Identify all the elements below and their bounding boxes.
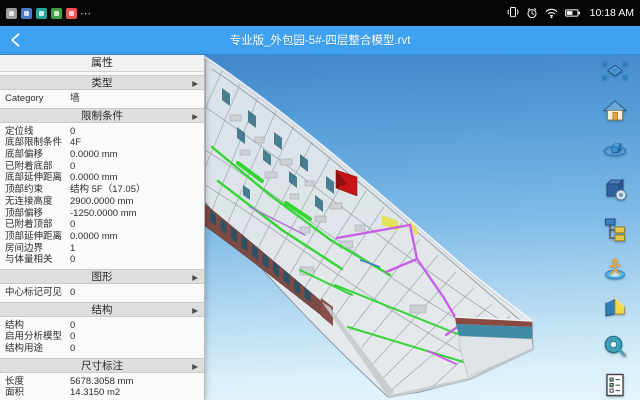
property-value: 0: [70, 320, 75, 332]
app-icon-teal: [36, 8, 47, 19]
section-header[interactable]: 限制条件▶: [0, 108, 204, 123]
property-value: 0: [70, 161, 75, 173]
property-value: 0.0000 mm: [70, 231, 118, 243]
home-view-button[interactable]: [600, 97, 630, 125]
properties-panel: 属性 类型▶Category墙限制条件▶定位线0底部限制条件4F底部偏移0.00…: [0, 55, 205, 400]
status-bar: ⋯ 10:18 AM: [0, 0, 640, 26]
section-header[interactable]: 结构▶: [0, 302, 204, 317]
measure-button[interactable]: [600, 332, 630, 360]
property-row[interactable]: 面积14.3150 m2: [0, 387, 204, 399]
property-label: 顶部约束: [5, 184, 43, 196]
battery-icon: [563, 5, 583, 21]
checklist-button[interactable]: [600, 371, 630, 399]
section-header[interactable]: 图形▶: [0, 269, 204, 284]
properties-panel-title: 属性: [0, 55, 204, 72]
property-label: 中心标记可见: [5, 287, 62, 299]
app-icon-green: [51, 8, 62, 19]
expand-arrow-icon: ▶: [192, 76, 198, 91]
property-label: 无连接高度: [5, 196, 53, 208]
section-header-label: 图形: [92, 271, 113, 283]
property-row[interactable]: 已附着底部0: [0, 161, 204, 173]
clock-time: 10:18 AM: [590, 7, 634, 19]
structure-tree-button[interactable]: [600, 215, 630, 243]
expand-arrow-icon: ▶: [192, 359, 198, 374]
property-row[interactable]: 底部偏移0.0000 mm: [0, 149, 204, 161]
property-label: 底部偏移: [5, 149, 43, 161]
property-label: 顶部偏移: [5, 208, 43, 220]
property-label: 顶部延伸距离: [5, 231, 62, 243]
checklist-icon: [602, 372, 628, 398]
app-screen: ⋯ 10:18 AM: [0, 0, 640, 400]
section-header-label: 类型: [92, 77, 113, 89]
content-area: 属性 类型▶Category墙限制条件▶定位线0底部限制条件4F底部偏移0.00…: [0, 55, 640, 400]
section-header-label: 限制条件: [81, 110, 123, 122]
property-row[interactable]: 结构用途0: [0, 343, 204, 355]
home-icon: [602, 98, 628, 124]
system-status-icons: 10:18 AM: [505, 5, 634, 21]
fit-view-button[interactable]: [600, 58, 630, 86]
alarm-icon: [524, 5, 540, 21]
property-row[interactable]: 结构0: [0, 320, 204, 332]
section-button[interactable]: [600, 293, 630, 321]
property-label: 结构用途: [5, 343, 43, 355]
back-chevron-icon: [8, 31, 26, 49]
property-label: 已附着顶部: [5, 219, 53, 231]
property-row[interactable]: 底部限制条件4F: [0, 137, 204, 149]
property-value: 0.0000 mm: [70, 149, 118, 161]
property-label: 结构: [5, 320, 24, 332]
property-value: 0: [70, 219, 75, 231]
walkthrough-button[interactable]: [600, 254, 630, 282]
property-value: 0: [70, 331, 75, 343]
property-value: 墙: [70, 93, 80, 105]
property-row[interactable]: 底部延伸距离0.0000 mm: [0, 172, 204, 184]
document-title: 专业版_外包园-5#-四层整合模型.rvt: [0, 32, 640, 48]
section-icon: [602, 294, 628, 320]
app-icon-blue: [21, 8, 32, 19]
expand-arrow-icon: ▶: [192, 109, 198, 124]
property-value: 1: [70, 243, 75, 255]
property-value: 结构 5F（17.05）: [70, 184, 146, 196]
property-label: Category: [5, 93, 44, 105]
model-browser-button[interactable]: [600, 175, 630, 203]
measure-icon: [602, 333, 628, 359]
property-value: 14.3150 m2: [70, 387, 120, 399]
property-value: 2900.0000 mm: [70, 196, 133, 208]
notification-icons: [6, 8, 77, 19]
property-label: 底部限制条件: [5, 137, 62, 149]
property-row[interactable]: 与体量相关0: [0, 254, 204, 266]
expand-arrow-icon: ▶: [192, 270, 198, 285]
property-value: 4F: [70, 137, 81, 149]
property-label: 面积: [5, 387, 24, 399]
property-value: 0: [70, 126, 75, 138]
section-header-label: 尺寸标注: [81, 360, 123, 372]
property-row[interactable]: 顶部约束结构 5F（17.05）: [0, 184, 204, 196]
app-icon-gray: [6, 8, 17, 19]
property-row[interactable]: 长度5678.3058 mm: [0, 376, 204, 388]
property-row[interactable]: 已附着顶部0: [0, 219, 204, 231]
expand-arrow-icon: ▶: [192, 303, 198, 318]
property-row[interactable]: 无连接高度2900.0000 mm: [0, 196, 204, 208]
property-value: 0: [70, 343, 75, 355]
property-row[interactable]: 房间边界1: [0, 243, 204, 255]
property-label: 长度: [5, 376, 24, 388]
property-label: 已附着底部: [5, 161, 53, 173]
property-value: -1250.0000 mm: [70, 208, 137, 220]
orbit-button[interactable]: [600, 136, 630, 164]
overflow-dots-icon: ⋯: [80, 7, 92, 20]
walkthrough-icon: [602, 255, 628, 281]
properties-rows: 类型▶Category墙限制条件▶定位线0底部限制条件4F底部偏移0.0000 …: [0, 75, 204, 399]
property-label: 定位线: [5, 126, 34, 138]
property-row[interactable]: 定位线0: [0, 126, 204, 138]
property-value: 0: [70, 254, 75, 266]
property-value: 5678.3058 mm: [70, 376, 133, 388]
section-header[interactable]: 类型▶: [0, 75, 204, 90]
property-label: 启用分析模型: [5, 331, 62, 343]
fit-view-icon: [602, 59, 628, 85]
property-label: 房间边界: [5, 243, 43, 255]
section-header-label: 结构: [92, 304, 113, 316]
property-row[interactable]: 顶部延伸距离0.0000 mm: [0, 231, 204, 243]
property-row[interactable]: 中心标记可见0: [0, 287, 204, 299]
model-box-icon: [602, 176, 628, 202]
property-row[interactable]: 启用分析模型0: [0, 331, 204, 343]
property-label: 底部延伸距离: [5, 172, 62, 184]
property-row[interactable]: 顶部偏移-1250.0000 mm: [0, 208, 204, 220]
back-button[interactable]: [0, 26, 34, 55]
vibrate-icon: [505, 5, 521, 21]
orbit-icon: [602, 137, 628, 163]
app-icon-red: [66, 8, 77, 19]
title-bar: 专业版_外包园-5#-四层整合模型.rvt: [0, 26, 640, 55]
property-value: 0: [70, 287, 75, 299]
section-header[interactable]: 尺寸标注▶: [0, 358, 204, 373]
right-toolbar: [592, 55, 638, 400]
property-row[interactable]: Category墙: [0, 93, 204, 105]
wifi-icon: [543, 5, 560, 21]
property-label: 与体量相关: [5, 254, 53, 266]
tree-icon: [602, 216, 628, 242]
property-value: 0.0000 mm: [70, 172, 118, 184]
